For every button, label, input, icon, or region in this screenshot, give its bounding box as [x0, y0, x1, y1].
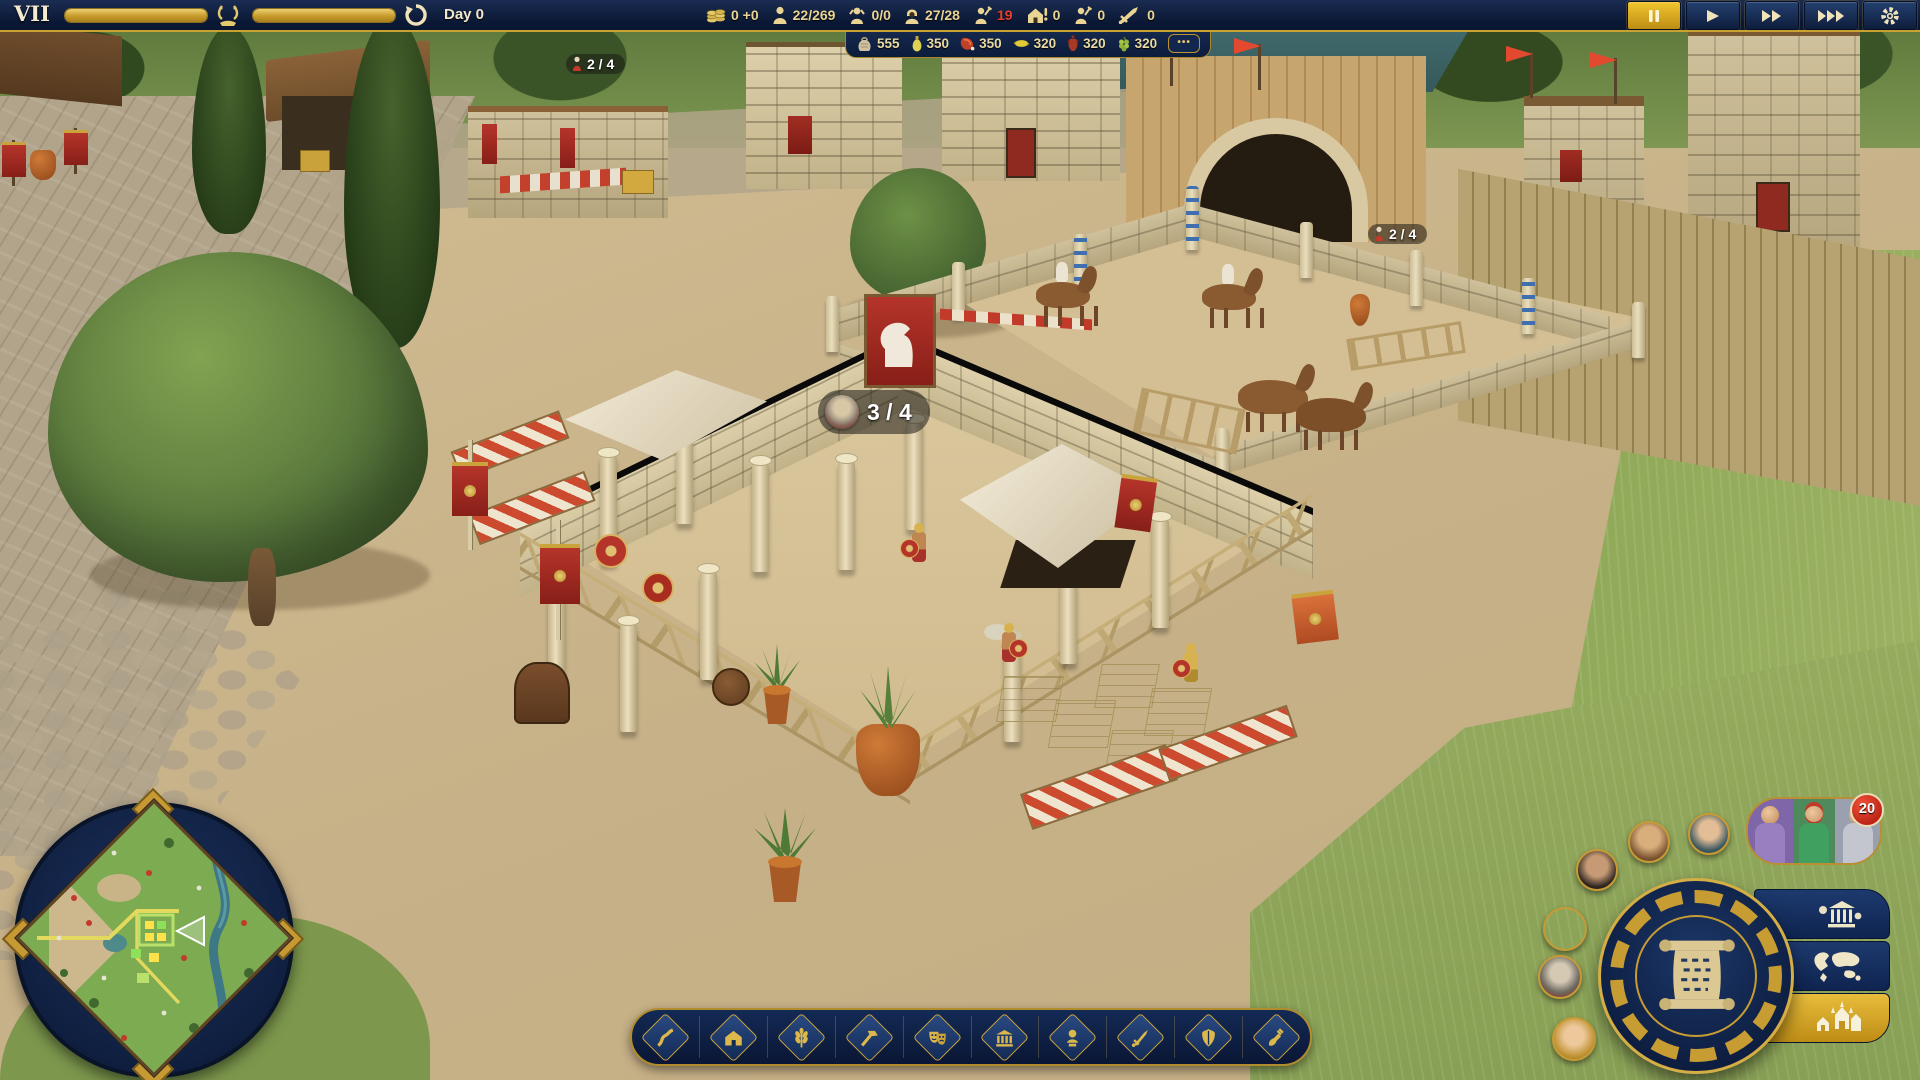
- build-toolbar: [630, 1008, 1312, 1066]
- hanging-banner: [1291, 590, 1339, 645]
- agave-plant: [852, 660, 924, 730]
- round-shield: [594, 534, 628, 568]
- pennant-flag: [1234, 38, 1261, 54]
- grapes-icon: [1117, 36, 1131, 52]
- gladiator: [912, 532, 926, 562]
- resource-indicators: 0 +0 22/269 0/0 27/28: [706, 0, 1155, 30]
- favor-progress-bar: [252, 8, 396, 23]
- advisor-portrait-3[interactable]: [1576, 849, 1618, 891]
- cloth-table: [1020, 744, 1178, 830]
- gear-icon: [1879, 5, 1901, 27]
- olive-oil-icon: [911, 35, 923, 52]
- advisor-portrait-6[interactable]: [1552, 1017, 1596, 1061]
- paddock-post: [1300, 222, 1313, 278]
- buildings-icon: [1813, 999, 1863, 1037]
- good-olive-oil: 350: [911, 35, 950, 52]
- worker-count-marker[interactable]: 2 / 4: [566, 54, 625, 74]
- temple-button-icon: [1817, 896, 1863, 932]
- worker-count-label: 2 / 4: [1389, 226, 1416, 242]
- sword-icon: [1116, 1012, 1165, 1061]
- column: [700, 568, 717, 680]
- worker-count-label: 3 / 4: [867, 399, 912, 426]
- temple-icon: [980, 1012, 1029, 1061]
- idle-citizen-icon: [848, 6, 866, 25]
- citizen-icon: [772, 6, 788, 25]
- toolbar-prestige[interactable]: [1039, 1016, 1107, 1057]
- fame-progress-fill: [65, 9, 207, 22]
- tree-trunk: [248, 548, 276, 626]
- column: [838, 458, 855, 570]
- paddock-post-blue: [1522, 278, 1535, 334]
- toolbar-food[interactable]: [768, 1016, 836, 1057]
- resource-idle: 0/0: [848, 6, 890, 25]
- advisor-portrait-4[interactable]: [1543, 907, 1587, 951]
- house-banner: [788, 116, 812, 154]
- play-button[interactable]: [1686, 1, 1740, 30]
- lemon-icon: [1013, 37, 1030, 50]
- fastest-button[interactable]: [1804, 1, 1858, 30]
- wine-value: 320: [1083, 36, 1106, 51]
- paddock-post: [1410, 250, 1423, 306]
- toolbar-military[interactable]: [1107, 1016, 1175, 1057]
- stable-banner: [864, 294, 936, 388]
- meat-value: 350: [979, 36, 1002, 51]
- column: [906, 418, 923, 530]
- sword-icon: [1118, 6, 1142, 24]
- shovel-icon: [1252, 1012, 1301, 1061]
- objectives-scroll-button[interactable]: [1598, 878, 1794, 1074]
- building-alerts-value: 0: [1053, 7, 1061, 23]
- missing-workers-value: 19: [997, 7, 1013, 23]
- legion-banner: [540, 544, 580, 604]
- meat-icon: [960, 36, 975, 52]
- level-numeral: VII: [14, 0, 50, 29]
- toolbar-culture[interactable]: [904, 1016, 972, 1057]
- toolbar-civic[interactable]: [972, 1016, 1040, 1057]
- housing-value: 27/28: [925, 7, 960, 23]
- worker-count-marker[interactable]: 2 / 4: [1368, 224, 1427, 244]
- house-icon: [709, 1012, 758, 1061]
- delegate-figure: [1748, 799, 1792, 863]
- advisor-portrait-5[interactable]: [1538, 955, 1582, 999]
- hay-bale: [1144, 688, 1212, 736]
- house-alert-icon: [1026, 6, 1048, 25]
- house-door: [1006, 128, 1036, 178]
- worker-count-marker[interactable]: 3 / 4: [818, 390, 930, 434]
- paddock-post: [826, 296, 839, 352]
- wheat-icon: [777, 1012, 826, 1061]
- toolbar-production[interactable]: [836, 1016, 904, 1057]
- hammer-icon: [844, 1012, 893, 1061]
- shield-icon: [1184, 1012, 1233, 1061]
- toolbar-defense[interactable]: [1175, 1016, 1243, 1057]
- lemons-value: 320: [1034, 36, 1057, 51]
- coins-icon: [706, 6, 726, 24]
- paddock-post: [1632, 302, 1645, 358]
- worker-icon: [571, 56, 583, 72]
- resource-housing: 27/28: [904, 6, 960, 25]
- good-lemons: 320: [1013, 36, 1057, 51]
- tower-banner: [1560, 150, 1582, 182]
- advisor-portrait-1[interactable]: [1628, 821, 1670, 863]
- rider: [1222, 264, 1234, 284]
- gladiator: [1002, 632, 1016, 662]
- stall-banner: [482, 124, 497, 164]
- road-icon: [641, 1012, 690, 1061]
- fastest-icon: [1817, 9, 1845, 23]
- gladiator-portrait: [825, 395, 859, 429]
- horse-with-rider: [1202, 284, 1256, 310]
- worker-count-label: 2 / 4: [587, 56, 614, 72]
- column: [620, 620, 637, 732]
- pause-button[interactable]: [1627, 1, 1681, 30]
- crate: [300, 150, 330, 172]
- good-meat: 350: [960, 36, 1002, 52]
- crate-gold: [622, 170, 654, 194]
- delegate-figure: [1792, 799, 1836, 863]
- market-sign: [2, 142, 26, 177]
- stall-banner: [560, 128, 575, 168]
- fast-forward-button[interactable]: [1745, 1, 1799, 30]
- horse: [1296, 398, 1366, 432]
- wine-icon: [1067, 35, 1079, 52]
- cycle-icon: [404, 3, 428, 27]
- horse-with-rider: [1036, 282, 1090, 308]
- column: [1152, 516, 1169, 628]
- hooded-citizen-icon: [904, 6, 920, 25]
- play-icon: [1705, 9, 1721, 23]
- good-grain: 555: [856, 36, 900, 52]
- fast-forward-icon: [1761, 9, 1783, 23]
- toolbar-roads[interactable]: [632, 1016, 700, 1057]
- gladiator: [1184, 652, 1198, 682]
- grapes-value: 320: [1135, 36, 1158, 51]
- fame-progress-bar: [64, 8, 208, 23]
- more-goods-button[interactable]: •••: [1168, 34, 1200, 53]
- builders-value: 0: [1097, 7, 1105, 23]
- world-map-icon: [1811, 949, 1863, 983]
- column: [752, 460, 769, 572]
- paddock-post-blue: [1186, 186, 1199, 250]
- speed-controls: [1627, 1, 1917, 30]
- resource-builders: 0: [1073, 6, 1105, 25]
- game-viewport[interactable]: 2 / 4 3 / 4 2 / 4 VII Day: [0, 0, 1920, 1080]
- toolbar-housing[interactable]: [700, 1016, 768, 1057]
- grain-icon: [856, 36, 873, 52]
- theater-masks-icon: [912, 1012, 961, 1061]
- worker-icon: [1373, 226, 1385, 242]
- large-pot: [856, 724, 920, 796]
- advisor-portrait-2[interactable]: [1688, 813, 1730, 855]
- stall-roof-corner: [0, 24, 122, 107]
- good-wine: 320: [1067, 35, 1106, 52]
- resource-army: 0: [1118, 6, 1155, 24]
- scroll-icon: [1658, 933, 1736, 1019]
- goods-bar: 555 350 350 320: [845, 30, 1211, 58]
- bust-icon: [1048, 1012, 1097, 1061]
- resource-population: 22/269: [772, 6, 836, 25]
- army-value: 0: [1147, 7, 1155, 23]
- favor-progress-fill: [253, 9, 395, 22]
- builder-icon: [1073, 6, 1092, 25]
- population-value: 22/269: [793, 7, 836, 23]
- tower-door: [1756, 182, 1790, 232]
- market-sign: [64, 130, 88, 165]
- top-hud-bar: VII Day 0 0 +0: [0, 0, 1920, 32]
- day-counter: Day 0: [444, 0, 484, 30]
- horse-head-icon: [867, 297, 927, 379]
- stone-house-a[interactable]: [746, 42, 902, 189]
- settings-button[interactable]: [1863, 1, 1917, 30]
- resource-building-alerts: 0: [1026, 6, 1061, 25]
- olive-oil-value: 350: [927, 36, 950, 51]
- rider: [1056, 262, 1068, 282]
- pot-plant: [30, 150, 56, 180]
- pause-icon: [1647, 9, 1661, 23]
- gold-value: 0 +0: [731, 7, 759, 23]
- idle-value: 0/0: [871, 7, 890, 23]
- round-shield: [642, 572, 674, 604]
- notification-badge: 20: [1850, 793, 1884, 827]
- resource-missing-workers: 19: [973, 6, 1013, 25]
- minimap[interactable]: [6, 796, 302, 1080]
- pennant-flag: [1506, 46, 1533, 62]
- treasure-chest: [514, 662, 570, 724]
- legion-banner: [452, 462, 488, 516]
- worker-icon: [973, 6, 992, 25]
- toolbar-terraform[interactable]: [1243, 1016, 1310, 1057]
- good-grapes: 320: [1117, 36, 1158, 52]
- grain-value: 555: [877, 36, 900, 51]
- agave-plant: [742, 806, 828, 906]
- agave-plant: [742, 642, 812, 728]
- laurel-icon: [214, 3, 242, 29]
- hanging-banner: [1114, 474, 1157, 532]
- pennant-flag: [1590, 52, 1617, 68]
- resource-gold: 0 +0: [706, 6, 759, 24]
